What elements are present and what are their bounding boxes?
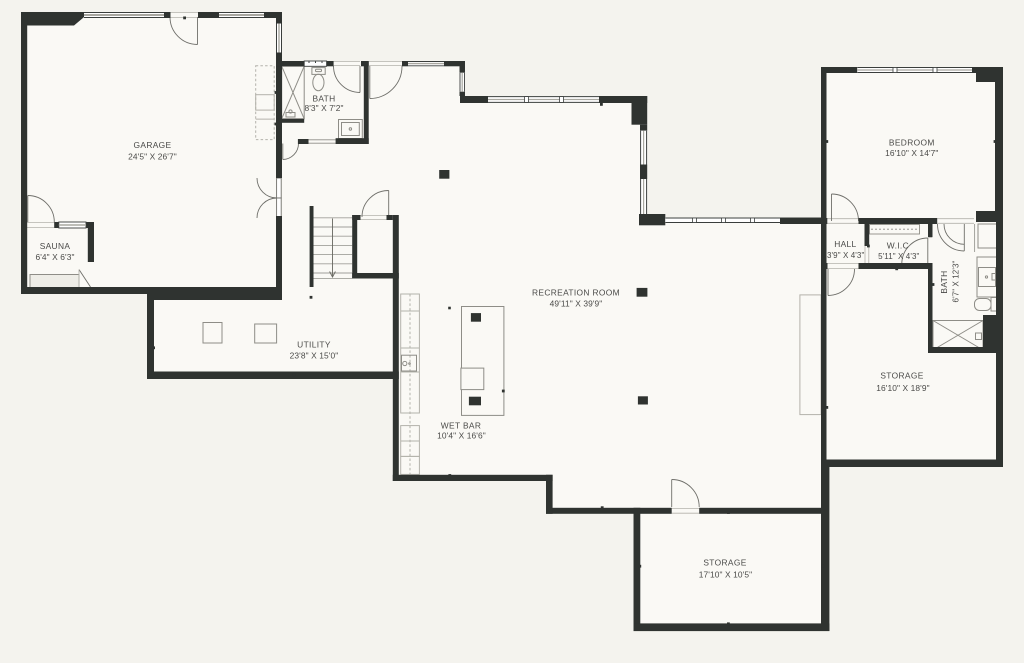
svg-text:17'10" X 10'5": 17'10" X 10'5" <box>699 570 752 580</box>
svg-text:6'4" X 6'3": 6'4" X 6'3" <box>35 252 74 262</box>
svg-text:WET BAR: WET BAR <box>441 421 481 431</box>
svg-text:BATH: BATH <box>939 270 949 293</box>
svg-text:W.I.C: W.I.C <box>887 241 909 251</box>
svg-text:5'11" X 4'3": 5'11" X 4'3" <box>878 252 919 261</box>
svg-text:10'4" X 16'6": 10'4" X 16'6" <box>437 431 486 441</box>
svg-text:8'3" X 7'2": 8'3" X 7'2" <box>304 103 343 113</box>
svg-text:16'10" X 18'9": 16'10" X 18'9" <box>876 383 929 393</box>
svg-text:STORAGE: STORAGE <box>880 371 923 381</box>
svg-text:6'7" X 12'3": 6'7" X 12'3" <box>951 260 960 302</box>
svg-text:49'11" X 39'9": 49'11" X 39'9" <box>550 298 603 308</box>
svg-text:UTILITY: UTILITY <box>297 340 331 350</box>
svg-text:24'5" X 26'7": 24'5" X 26'7" <box>128 152 177 162</box>
svg-text:HALL: HALL <box>834 239 856 249</box>
svg-text:SAUNA: SAUNA <box>40 241 71 251</box>
svg-text:BEDROOM: BEDROOM <box>889 138 935 148</box>
svg-text:16'10" X 14'7": 16'10" X 14'7" <box>885 148 938 158</box>
svg-text:RECREATION ROOM: RECREATION ROOM <box>532 287 620 297</box>
svg-text:3'9" X 4'3": 3'9" X 4'3" <box>827 251 864 260</box>
svg-text:BATH: BATH <box>312 94 335 104</box>
svg-text:23'8" X 15'0": 23'8" X 15'0" <box>290 351 339 361</box>
svg-text:GARAGE: GARAGE <box>134 140 172 150</box>
svg-text:STORAGE: STORAGE <box>703 558 746 568</box>
